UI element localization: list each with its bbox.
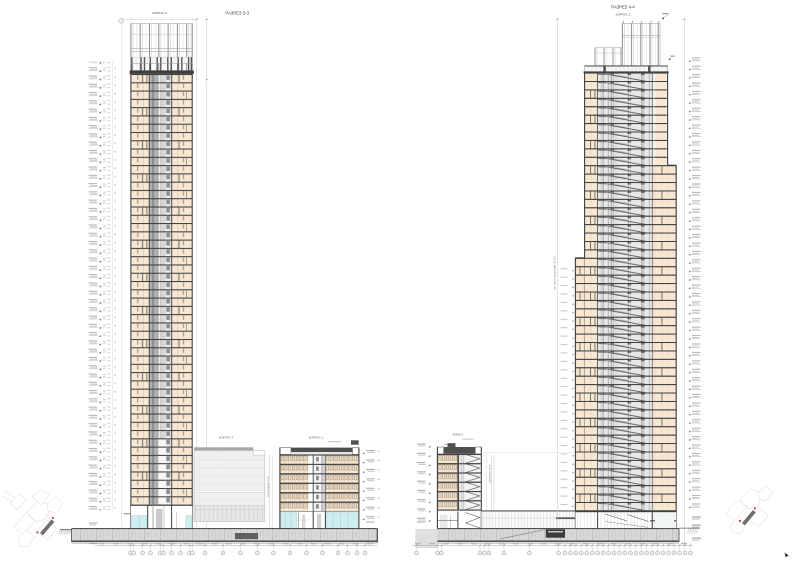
svg-text:БЛОК 3: БЛОК 3: [453, 433, 464, 437]
svg-text:КОРПУС 3: КОРПУС 3: [219, 436, 234, 440]
svg-text:подземная часть: подземная часть: [489, 464, 491, 483]
svg-text:КОРПУС 2: КОРПУС 2: [152, 11, 167, 15]
svg-text:КОРПУС 2: КОРПУС 2: [616, 13, 631, 17]
svg-text:РАЗРЕЗ 3-3: РАЗРЕЗ 3-3: [225, 11, 249, 16]
svg-text:отм. верха конструкций 181,800: отм. верха конструкций 181,800: [554, 255, 557, 290]
svg-text:КОРПУС 1: КОРПУС 1: [309, 436, 324, 440]
svg-text:зона погрузки 75,00: зона погрузки 75,00: [268, 475, 270, 497]
svg-text:РАЗРЕЗ 4-4: РАЗРЕЗ 4-4: [611, 4, 635, 9]
